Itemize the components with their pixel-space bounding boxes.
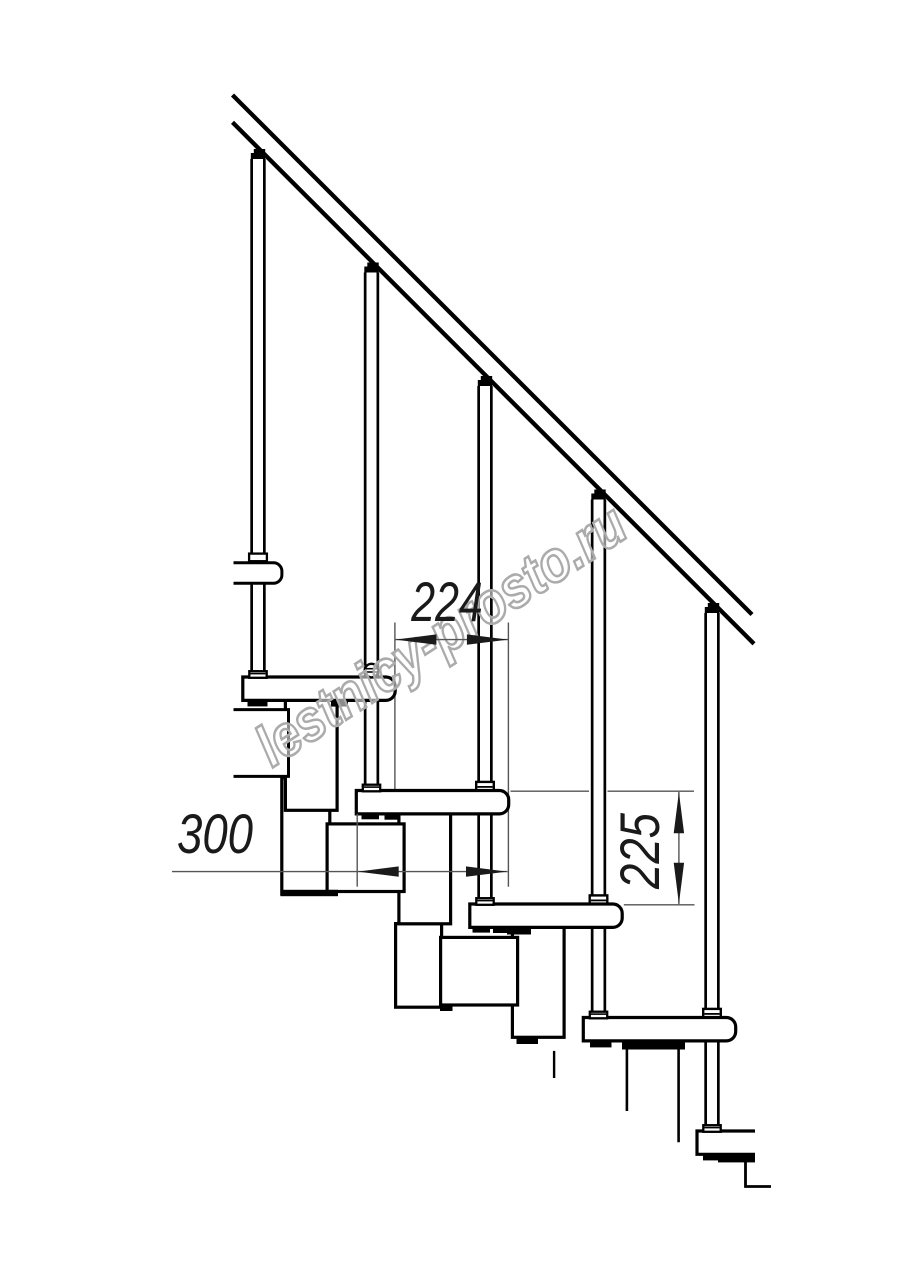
svg-text:224: 224 bbox=[410, 570, 482, 633]
svg-text:300: 300 bbox=[177, 802, 253, 865]
svg-text:225: 225 bbox=[608, 812, 671, 890]
